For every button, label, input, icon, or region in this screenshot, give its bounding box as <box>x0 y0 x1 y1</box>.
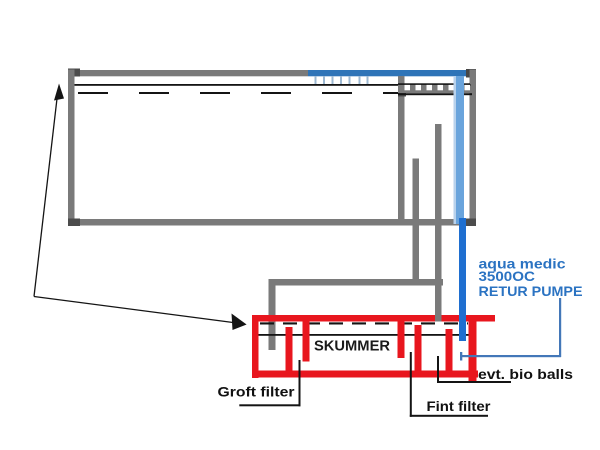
svg-text:evt. bio balls: evt. bio balls <box>478 366 573 382</box>
svg-text:3500OC: 3500OC <box>479 268 536 284</box>
svg-text:Fint filter: Fint filter <box>427 398 492 414</box>
svg-text:SKUMMER: SKUMMER <box>314 338 390 355</box>
svg-text:RETUR PUMPE: RETUR PUMPE <box>479 283 583 299</box>
svg-text:Groft filter: Groft filter <box>218 384 296 400</box>
